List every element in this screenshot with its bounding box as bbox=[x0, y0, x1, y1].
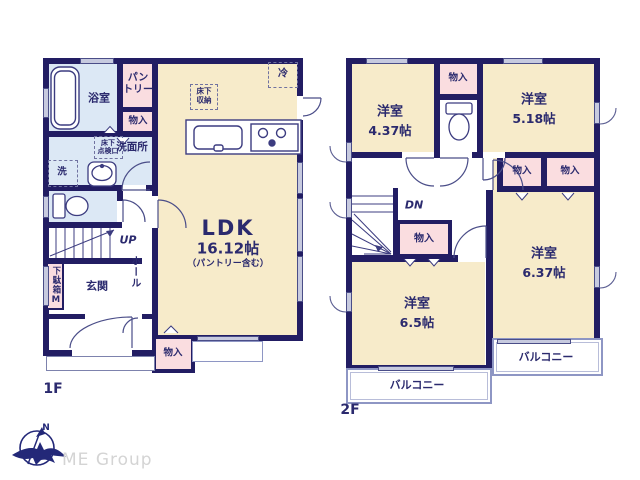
f2-window-left-2 bbox=[346, 198, 352, 218]
f2-floor-label: 2F bbox=[340, 402, 359, 418]
f2-balcony-left-label: バルコニー bbox=[390, 380, 445, 393]
f2-wall-closets-divider bbox=[541, 158, 547, 192]
f2-storage-mid-right-label: 物入 bbox=[560, 167, 579, 178]
f2-room-sw-floor bbox=[352, 262, 485, 365]
f2-wall-v2 bbox=[434, 58, 440, 152]
f1-wall-bath-pantry bbox=[117, 58, 123, 137]
f2-window-right-2 bbox=[594, 266, 600, 288]
f2-room-ne-size: 5.18帖 bbox=[512, 112, 555, 126]
f1-wall-entry-step-b bbox=[142, 314, 158, 319]
f2-wall-h1-c bbox=[472, 152, 483, 158]
f2-window-top-nw bbox=[366, 58, 408, 64]
f1-up-label: UP bbox=[120, 235, 137, 248]
f1-toilet-floor bbox=[46, 191, 117, 222]
staircase-2f bbox=[352, 196, 393, 254]
f1-wall-wash-bottom-b bbox=[146, 185, 158, 191]
f1-wall-toilet-right bbox=[117, 191, 123, 201]
f2-balcony-right-label: バルコニー bbox=[519, 352, 574, 365]
compass-icon bbox=[12, 427, 66, 465]
f1-inspection-hatch-label: 床下 点検口 bbox=[98, 139, 119, 155]
f1-kitchen-door-gap bbox=[297, 96, 303, 120]
compass-north-label: N bbox=[42, 423, 50, 433]
f1-wall-pantry-storage bbox=[117, 107, 158, 112]
f1-porch bbox=[46, 356, 155, 371]
f1-washer-label: 洗 bbox=[57, 168, 67, 179]
f1-bathroom-label: 浴室 bbox=[88, 93, 110, 106]
f1-wall-toilet-bottom bbox=[43, 222, 122, 228]
f1-window-right-1 bbox=[297, 162, 303, 194]
f2-wall-storage-toilet bbox=[437, 94, 480, 100]
f2-dn-label: DN bbox=[405, 200, 423, 213]
f1-ldk-name: LDK bbox=[201, 216, 254, 240]
f2-wall-closets-left bbox=[497, 158, 503, 192]
f2-balcony-door-right bbox=[497, 339, 571, 344]
f2-room-sw-name: 洋室 bbox=[404, 298, 430, 313]
f1-window-right-3 bbox=[297, 256, 303, 302]
f1-terrace-slider bbox=[197, 336, 259, 341]
floorplan-canvas: 浴室 パン トリー 物入 洗面所 床下 点検口 洗 冷 床下 収納 LDK 16… bbox=[0, 0, 640, 480]
f1-shoe-cabinet-label: 下駄箱M bbox=[50, 266, 60, 306]
f1-floor-label: 1F bbox=[43, 381, 62, 397]
f1-storage-lower-label: 物入 bbox=[163, 349, 182, 360]
f2-room-se-size: 6.37帖 bbox=[522, 266, 565, 280]
bird-silhouette-icon bbox=[12, 442, 66, 465]
f1-storage-upper-label: 物入 bbox=[128, 117, 147, 128]
f1-ldk-floor bbox=[158, 64, 297, 335]
f1-window-entry-left bbox=[43, 266, 49, 306]
f2-window-left-1 bbox=[346, 142, 352, 162]
f1-entrance-label: 玄関 bbox=[86, 281, 108, 294]
f2-room-se-name: 洋室 bbox=[531, 248, 557, 263]
f2-wall-h1-d bbox=[505, 152, 594, 158]
f1-window-bath-left bbox=[43, 88, 49, 118]
f1-window-right-2 bbox=[297, 198, 303, 252]
f1-window-toilet-left bbox=[43, 196, 49, 218]
f2-window-right-1 bbox=[594, 102, 600, 124]
f1-hall-label: ホール bbox=[128, 256, 140, 289]
f1-window-top bbox=[80, 58, 114, 64]
f2-room-sw-size: 6.5帖 bbox=[400, 316, 435, 330]
f1-underfloor-storage-label: 床下 収納 bbox=[197, 87, 212, 104]
f2-wall-v3 bbox=[477, 58, 483, 152]
f1-ldk-size: 16.12帖 bbox=[197, 240, 259, 257]
f1-ldk-note: （パントリー含む） bbox=[187, 259, 268, 269]
f2-balcony-door-left bbox=[378, 366, 454, 371]
f1-fridge-label: 冷 bbox=[278, 68, 288, 80]
f2-room-nw-name: 洋室 bbox=[377, 106, 403, 121]
f2-wall-h1-b bbox=[434, 152, 440, 158]
f2-storage-mid-left-label: 物入 bbox=[512, 167, 531, 178]
toilet-2f-icon bbox=[446, 103, 472, 140]
f2-room-ne-name: 洋室 bbox=[521, 94, 547, 109]
company-logo-text: ME Group bbox=[62, 450, 153, 470]
f1-pantry-label: パン トリー bbox=[123, 73, 153, 96]
f1-terrace bbox=[192, 341, 263, 362]
f2-wall-h1-a bbox=[352, 152, 402, 158]
f1-washroom-label: 洗面所 bbox=[116, 141, 148, 153]
f2-storage-hall-label: 物入 bbox=[414, 233, 434, 245]
f2-storage-top-label: 物入 bbox=[448, 74, 467, 85]
f2-window-left-3 bbox=[346, 292, 352, 312]
f2-room-nw-size: 4.37帖 bbox=[368, 124, 411, 138]
f1-wall-entry-step-a bbox=[46, 314, 85, 319]
f2-window-top-ne bbox=[503, 58, 543, 64]
